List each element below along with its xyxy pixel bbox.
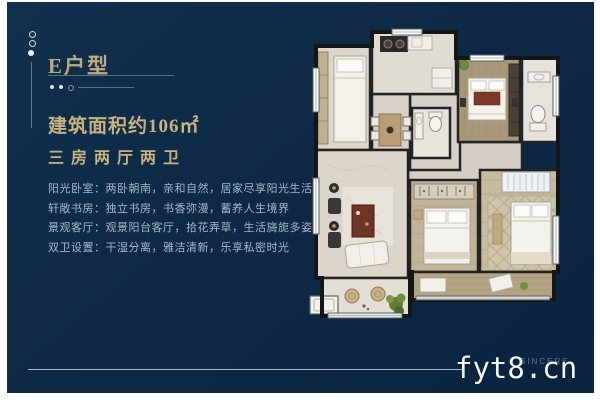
unit-area: 建筑面积约106㎡ bbox=[48, 111, 200, 138]
armchair-icon bbox=[328, 232, 341, 248]
flyer-canvas: E户型 建筑面积约106㎡ 三房两厅两卫 阳光卧室：两卧朝南，亲和自然，居家尽享… bbox=[0, 0, 600, 400]
deco-dash-line bbox=[78, 87, 134, 88]
site-watermark: fyt8.cn bbox=[455, 351, 577, 385]
title-underline bbox=[48, 75, 174, 76]
armchair-icon bbox=[328, 198, 341, 214]
deco-dot-hollow bbox=[68, 85, 74, 91]
feature-line: 景观客厅：观景阳台客厅，拾花弄草，生活旖旎多姿 bbox=[48, 219, 313, 239]
feature-line: 阳光卧室：两卧朝南，亲和自然，居家尽享阳光生活 bbox=[48, 180, 313, 200]
footer-line bbox=[28, 369, 462, 370]
window-icon bbox=[416, 296, 550, 300]
deco-dot-hollow bbox=[29, 40, 36, 47]
deco-dot-hollow bbox=[29, 31, 36, 38]
deco-vertical-line bbox=[31, 62, 32, 128]
toilet-icon bbox=[430, 117, 442, 132]
deco-dot-filled bbox=[59, 85, 63, 89]
stool-icon bbox=[371, 287, 385, 301]
plant-icon bbox=[520, 282, 528, 290]
feature-list: 阳光卧室：两卧朝南，亲和自然，居家尽享阳光生活 轩敞书房：独立书房，书香弥漫，蓄… bbox=[48, 180, 313, 258]
mat-icon bbox=[420, 278, 446, 292]
feature-line: 双卫设置：干湿分离，雅洁清新，乐享私密时光 bbox=[48, 239, 313, 259]
deco-dot-filled bbox=[50, 85, 54, 89]
bench-icon bbox=[493, 214, 502, 244]
coffee-table-icon bbox=[352, 205, 374, 237]
toilet-icon bbox=[531, 106, 545, 123]
floorplan-image bbox=[308, 28, 564, 320]
plant-icon bbox=[460, 61, 469, 70]
feature-line: 轩敞书房：独立书房，书香弥漫，蓄养人生境界 bbox=[48, 200, 313, 220]
floorplan-svg bbox=[308, 28, 564, 320]
deco-dot-filled bbox=[28, 50, 34, 56]
unit-layout: 三房两厅两卫 bbox=[48, 144, 186, 168]
stool-icon bbox=[345, 289, 359, 303]
sofa-icon bbox=[345, 241, 389, 269]
study-furniture bbox=[318, 52, 366, 144]
